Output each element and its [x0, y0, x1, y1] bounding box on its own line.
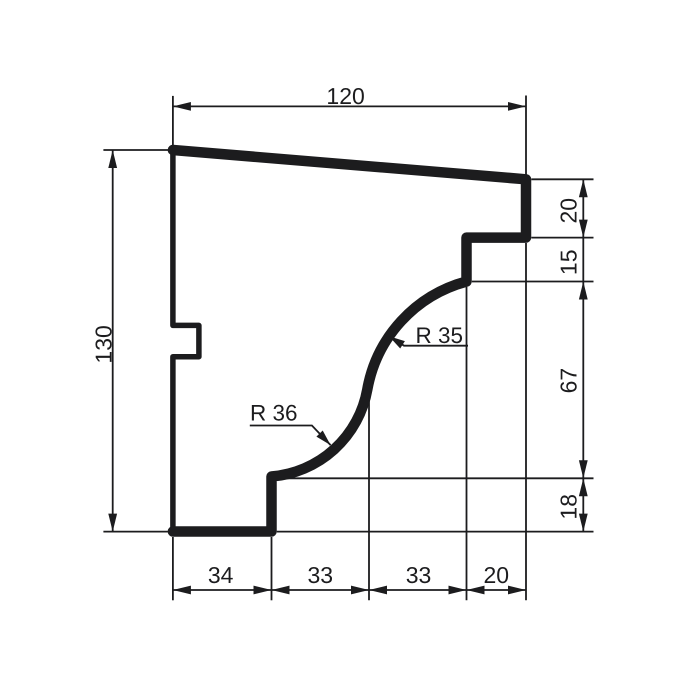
- svg-text:20: 20: [555, 198, 581, 224]
- svg-text:R 36: R 36: [250, 401, 298, 426]
- svg-text:18: 18: [555, 494, 581, 520]
- svg-text:20: 20: [484, 562, 510, 588]
- svg-text:R 35: R 35: [416, 323, 464, 348]
- svg-text:33: 33: [308, 562, 334, 588]
- svg-text:15: 15: [555, 250, 581, 276]
- svg-text:120: 120: [326, 83, 364, 109]
- svg-text:130: 130: [90, 325, 116, 363]
- svg-text:33: 33: [406, 562, 432, 588]
- svg-text:34: 34: [208, 562, 234, 588]
- svg-text:67: 67: [555, 368, 581, 394]
